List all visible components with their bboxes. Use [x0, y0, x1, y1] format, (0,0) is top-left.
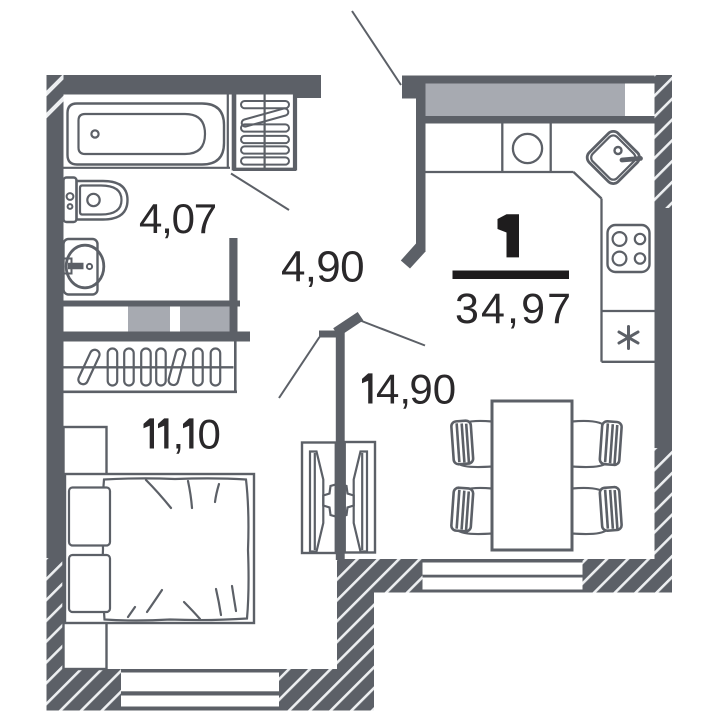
svg-text:4,90: 4,90 [281, 243, 364, 292]
svg-text:90: 90 [409, 366, 456, 413]
svg-text:4,07: 4,07 [139, 195, 216, 242]
svg-text:34,97: 34,97 [455, 285, 573, 333]
svg-text:4: 4 [376, 366, 399, 413]
svg-text:0: 0 [198, 411, 221, 458]
svg-text:,: , [173, 411, 185, 458]
